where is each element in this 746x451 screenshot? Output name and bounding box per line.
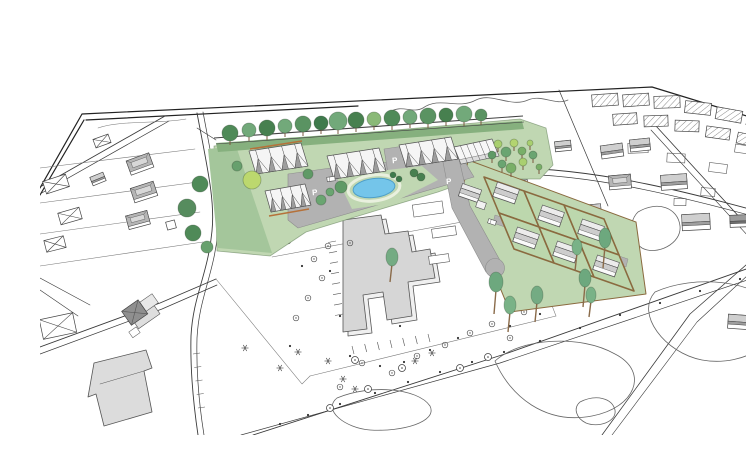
dot-symbol <box>399 325 401 327</box>
tree <box>367 112 381 126</box>
tree <box>295 116 311 132</box>
shrub-center <box>327 245 328 246</box>
parking-tick <box>334 304 342 306</box>
foreground-tree <box>586 287 596 303</box>
street-tree-dot <box>503 351 505 353</box>
plan-building-hatched <box>715 107 743 123</box>
street-tree-dot <box>339 403 341 405</box>
tree <box>494 140 502 148</box>
parking-tick <box>197 394 204 395</box>
plan-building-hatched <box>592 93 619 107</box>
parking-tick <box>332 283 340 285</box>
tree <box>518 147 526 155</box>
tree <box>488 151 496 159</box>
rect <box>592 93 619 107</box>
parking-tick <box>196 380 203 381</box>
tree <box>498 160 506 168</box>
shrub-center <box>391 372 392 373</box>
tree <box>222 125 238 141</box>
foreground-tree <box>599 228 611 248</box>
polygon <box>88 350 152 426</box>
context-road <box>241 267 746 435</box>
dot-symbol <box>457 337 459 339</box>
shrub-center <box>349 242 350 243</box>
shrub-center <box>469 332 470 333</box>
parking-tick <box>328 241 336 243</box>
tree <box>326 188 334 196</box>
dot-symbol <box>379 365 381 367</box>
parking-tick <box>365 344 367 352</box>
rect <box>327 176 336 181</box>
parcel-line <box>216 279 310 384</box>
parking-tick <box>390 340 392 348</box>
context-house <box>600 143 624 159</box>
shrub-center <box>361 362 362 363</box>
plan-building-hatched <box>623 93 650 107</box>
parking-tick <box>330 262 338 264</box>
shrub-center <box>509 337 510 338</box>
foreground-tree <box>489 272 503 292</box>
street-tree-dot <box>659 302 661 304</box>
plan-building-crossed <box>58 207 82 225</box>
circle <box>367 388 369 390</box>
tree <box>417 173 425 181</box>
context-house <box>728 314 746 330</box>
tree <box>384 110 400 126</box>
dot-symbol <box>403 361 405 363</box>
tree <box>475 109 487 121</box>
foreground-tree <box>572 239 582 255</box>
foreground-tree <box>386 248 398 266</box>
tree <box>519 158 527 166</box>
context-house <box>555 140 572 152</box>
plan-building-hatched <box>675 120 699 132</box>
terrain-contour <box>576 398 615 425</box>
shrub-center <box>491 323 492 324</box>
context-house <box>608 174 631 190</box>
street-tree-dot <box>374 392 376 394</box>
tree <box>510 139 518 147</box>
shrub-center <box>307 297 308 298</box>
street-tree-dot <box>279 423 281 425</box>
tree <box>335 181 347 193</box>
street-tree-dot <box>619 314 621 316</box>
parking-tick <box>428 334 430 342</box>
tree <box>314 116 328 130</box>
terrain-contour <box>423 98 568 108</box>
street-tree-dot <box>439 371 441 373</box>
rect <box>613 113 638 126</box>
parking-tick <box>352 346 354 354</box>
plan-building-crossed <box>44 236 66 252</box>
shrub-center <box>295 317 296 318</box>
street-tree-dot <box>739 278 741 280</box>
context-road <box>40 278 90 305</box>
rect <box>654 96 680 109</box>
street-tree-dot <box>407 381 409 383</box>
trunk <box>494 290 496 314</box>
school-outbuilding <box>412 201 443 217</box>
shrub-center <box>339 386 340 387</box>
rect <box>166 220 177 230</box>
context-house <box>126 210 151 229</box>
polygon <box>730 221 746 224</box>
dot-symbol <box>339 315 341 317</box>
circle <box>354 359 356 361</box>
foreground-tree <box>504 296 516 314</box>
tree <box>185 225 201 241</box>
plan-building-hatched <box>684 101 711 116</box>
community-hall-building <box>88 350 152 426</box>
parking-tick <box>193 353 200 354</box>
dot-symbol <box>301 265 303 267</box>
context-house <box>661 174 688 191</box>
dot-symbol <box>349 355 351 357</box>
shrub-center <box>416 355 417 356</box>
church-building <box>117 291 167 337</box>
street-tree-dot <box>539 340 541 342</box>
rect <box>644 115 668 127</box>
site-plan-canvas: PPP <box>40 16 746 435</box>
circle <box>459 367 461 369</box>
foreground-tree <box>531 286 543 304</box>
rect <box>412 201 443 217</box>
tree <box>527 140 533 146</box>
rect <box>674 198 686 205</box>
rect <box>735 144 746 154</box>
circle <box>401 367 403 369</box>
rect <box>675 120 699 132</box>
rect <box>705 126 730 140</box>
circle <box>487 356 489 358</box>
tree <box>259 120 275 136</box>
rect <box>431 226 456 238</box>
parking-tick <box>194 367 201 368</box>
tree <box>456 106 472 122</box>
dot-symbol <box>329 270 331 272</box>
tree <box>506 163 516 173</box>
context-house <box>126 153 154 175</box>
parking-tick <box>335 314 343 316</box>
tree <box>420 108 436 124</box>
context-road <box>40 290 78 316</box>
parking-tick <box>333 293 341 295</box>
plan-building-hatched <box>613 113 638 126</box>
tree <box>192 176 208 192</box>
tree <box>178 199 196 217</box>
tree <box>348 112 364 128</box>
site-plan-illustration: PPP <box>40 16 746 435</box>
tree <box>501 147 511 157</box>
dot-symbol <box>539 313 541 315</box>
parking-tick <box>377 342 379 350</box>
context-house <box>629 138 650 152</box>
tree <box>232 161 242 171</box>
street-tree-dot <box>579 327 581 329</box>
tree <box>396 176 402 182</box>
plan-building-outline <box>674 198 686 205</box>
context-house <box>682 213 711 230</box>
tree <box>278 119 292 133</box>
context-house <box>90 172 106 186</box>
parking-tick <box>329 251 337 253</box>
shrub-center <box>523 311 524 312</box>
context-house <box>730 215 746 228</box>
tree <box>243 171 261 189</box>
tree <box>529 151 537 159</box>
context-symbols <box>193 238 741 425</box>
trunk <box>508 312 510 332</box>
dot-symbol <box>289 345 291 347</box>
plan-building-hatched <box>654 96 680 109</box>
parking-tick <box>403 338 405 346</box>
parking-tick <box>415 336 417 344</box>
rect <box>715 107 743 123</box>
tree <box>201 241 213 253</box>
parcel-line <box>40 149 195 168</box>
shrub-center <box>321 277 322 278</box>
street-tree-dot <box>307 414 309 416</box>
parking-tick <box>198 407 205 408</box>
trunk <box>589 301 591 317</box>
shrub-center <box>444 344 445 345</box>
context-road <box>651 130 746 272</box>
shrub-center <box>313 258 314 259</box>
foreground-tree <box>579 269 591 287</box>
car <box>327 176 336 181</box>
tree <box>303 169 313 179</box>
circle <box>329 407 331 409</box>
tree <box>536 164 542 170</box>
plan-building-hatched <box>644 115 668 127</box>
polygon <box>730 215 746 222</box>
rect <box>709 162 728 173</box>
tree <box>390 172 396 178</box>
plan-building-outline <box>735 144 746 154</box>
school-outbuilding <box>431 226 456 238</box>
tree <box>439 108 453 122</box>
school-building <box>343 201 457 336</box>
street-tree-dot <box>699 290 701 292</box>
parking-tick <box>331 272 339 274</box>
tree <box>403 110 417 124</box>
context-house <box>130 181 157 203</box>
rect <box>613 177 627 183</box>
plan-building-hatched <box>705 126 730 140</box>
tree <box>329 112 347 130</box>
parcel-line <box>98 119 186 128</box>
street-tree-dot <box>471 361 473 363</box>
context-house <box>166 220 177 230</box>
rect <box>623 93 650 107</box>
plan-building-outline <box>709 162 728 173</box>
plan-building-crossed <box>93 134 111 148</box>
tree <box>242 123 256 137</box>
